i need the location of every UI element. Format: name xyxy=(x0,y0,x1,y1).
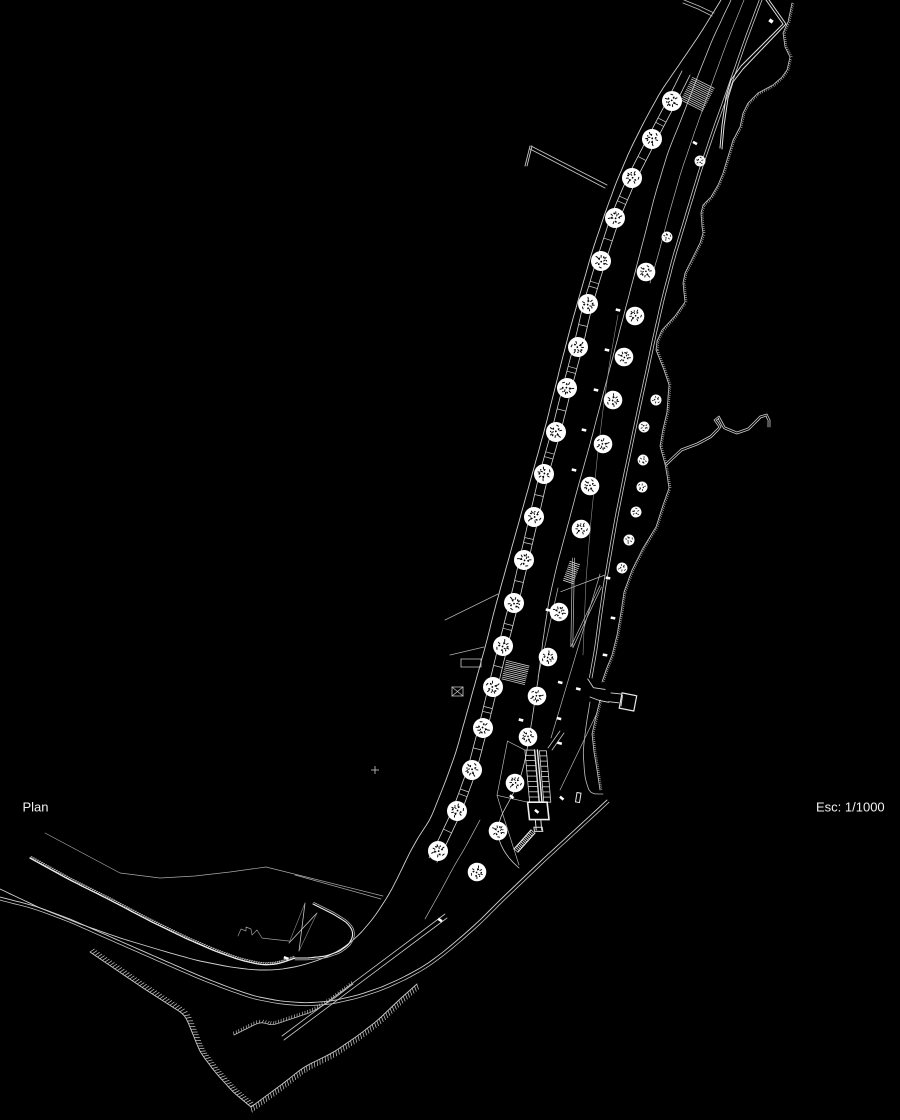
svg-text:Esc: 1/1000: Esc: 1/1000 xyxy=(816,800,885,815)
svg-text:Plan: Plan xyxy=(23,800,49,815)
